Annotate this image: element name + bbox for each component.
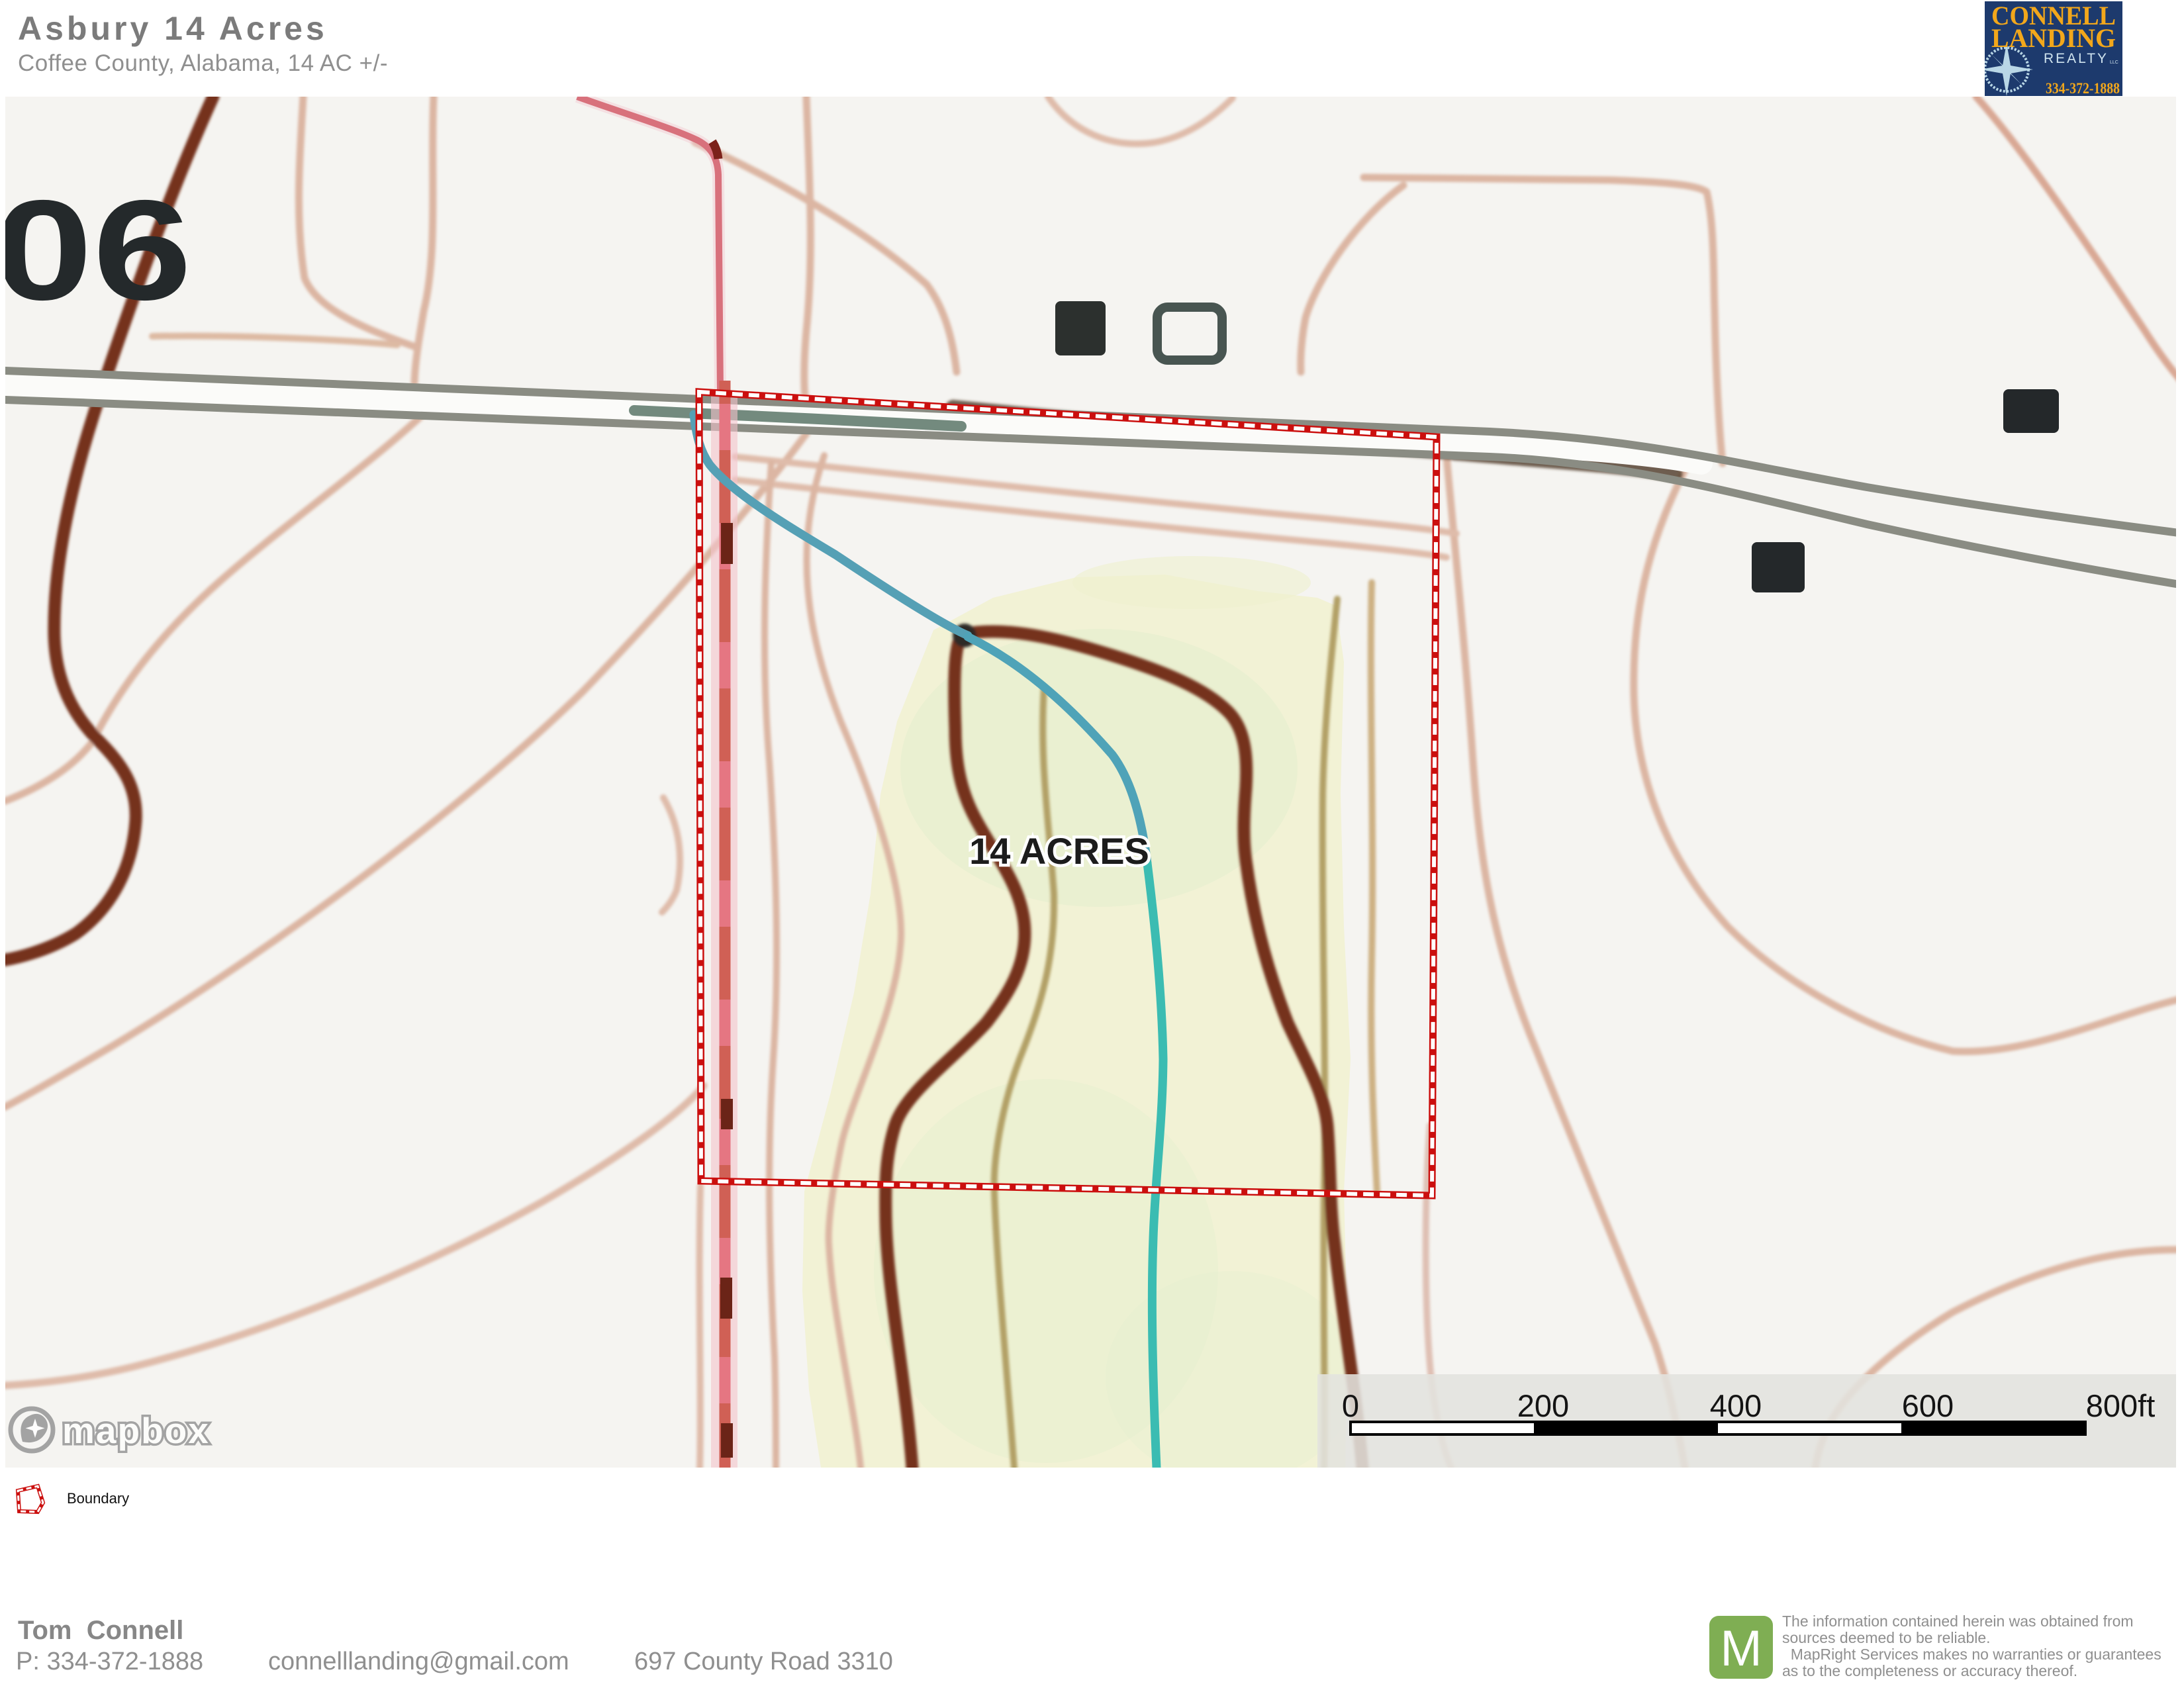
svg-text:0: 0 — [1342, 1388, 1359, 1423]
svg-text:LANDING: LANDING — [1991, 23, 2116, 53]
svg-text:mapbox: mapbox — [62, 1410, 210, 1451]
svg-text:400: 400 — [1710, 1388, 1762, 1423]
svg-text:06: 06 — [5, 170, 192, 330]
svg-text:334-372-1888: 334-372-1888 — [2046, 80, 2120, 96]
svg-text:600: 600 — [1902, 1388, 1954, 1423]
svg-text:LLC: LLC — [2110, 60, 2118, 65]
svg-text:200: 200 — [1517, 1388, 1569, 1423]
svg-text:800ft: 800ft — [2086, 1388, 2156, 1423]
svg-text:REALTY: REALTY — [2044, 51, 2109, 66]
svg-text:14 ACRES: 14 ACRES — [969, 830, 1149, 872]
